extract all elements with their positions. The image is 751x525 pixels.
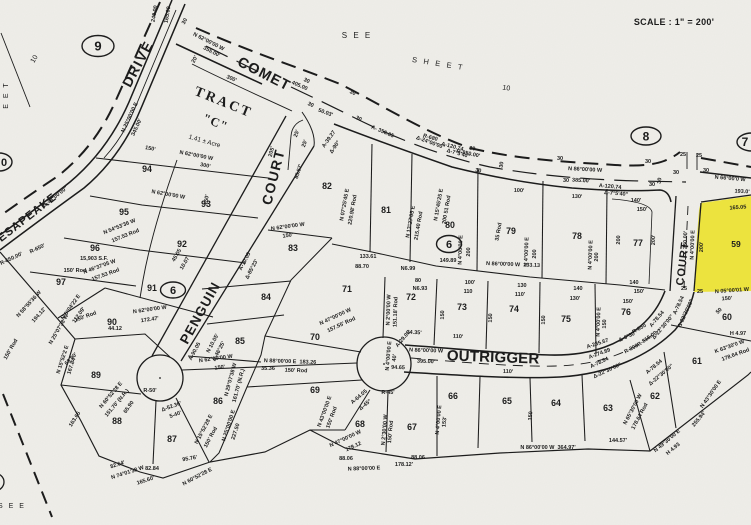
svg-text:68: 68 [355,419,365,429]
svg-text:153': 153' [442,416,449,428]
svg-text:92: 92 [177,239,187,249]
svg-text:83: 83 [288,243,298,253]
svg-text:150': 150' [637,207,648,213]
svg-text:25: 25 [696,153,702,159]
svg-text:70: 70 [310,332,320,342]
svg-text:76: 76 [621,307,631,317]
svg-text:91: 91 [147,283,157,293]
svg-text:59: 59 [731,239,741,249]
svg-text:44.12: 44.12 [108,326,122,332]
svg-text:94: 94 [142,164,152,174]
svg-text:N 88°00'00 E: N 88°00'00 E [348,465,381,472]
svg-text:N 4°00'00 E: N 4°00'00 E [689,230,696,260]
svg-text:S E E: S E E [342,31,372,40]
svg-text:78: 78 [572,231,582,241]
svg-text:81: 81 [381,205,391,215]
svg-text:30: 30 [499,161,506,168]
svg-text:10: 10 [502,84,511,92]
svg-text:133.61: 133.61 [360,254,377,260]
svg-text:200': 200' [651,234,657,245]
svg-text:140: 140 [629,280,638,286]
svg-text:30: 30 [649,182,655,188]
svg-text:151.18' Rod: 151.18' Rod [392,297,399,328]
svg-text:40': 40' [392,353,399,362]
svg-text:69: 69 [310,385,320,395]
svg-text:86: 86 [213,396,223,406]
svg-text:30: 30 [469,146,476,153]
svg-text:82: 82 [322,181,332,191]
svg-text:85: 85 [235,336,245,346]
svg-text:250.00': 250.00' [683,230,690,249]
svg-text:200: 200 [616,235,622,244]
svg-text:66: 66 [448,391,458,401]
svg-text:25: 25 [681,286,687,292]
svg-text:150' Rod: 150' Rod [64,268,87,274]
svg-text:73: 73 [457,302,467,312]
svg-text:140: 140 [573,286,582,292]
svg-text:178.12': 178.12' [395,462,414,468]
svg-text:30: 30 [645,159,651,165]
svg-text:110': 110' [515,292,526,298]
svg-text:N 4°00'00 E: N 4°00'00 E [457,235,464,265]
svg-text:30: 30 [703,168,709,174]
svg-text:35.36: 35.36 [261,366,275,372]
svg-text:95: 95 [119,207,129,217]
svg-text:77: 77 [633,238,643,248]
svg-text:R-45': R-45' [381,390,395,396]
svg-text:100': 100' [514,188,525,194]
svg-text:150': 150' [634,289,645,295]
svg-text:130': 130' [570,296,581,302]
svg-text:30: 30 [657,177,664,184]
svg-text:72: 72 [406,292,416,302]
svg-text:E E T: E E T [3,81,10,108]
svg-text:60: 60 [722,312,732,322]
svg-text:150: 150 [488,313,494,322]
svg-text:200: 200 [532,249,538,258]
svg-text:165.05: 165.05 [729,204,746,211]
svg-text:25: 25 [680,152,686,158]
svg-text:395.00': 395.00' [417,359,436,366]
svg-text:79: 79 [506,226,516,236]
svg-text:110: 110 [464,289,473,295]
svg-text:88.06: 88.06 [411,455,425,461]
svg-text:88.06: 88.06 [339,456,353,462]
svg-text:200: 200 [466,247,472,256]
svg-text:30: 30 [673,170,679,176]
svg-text:67: 67 [407,422,417,432]
svg-text:100': 100' [465,280,476,286]
svg-text:87: 87 [167,434,177,444]
svg-text:R-50': R-50' [143,388,157,394]
svg-text:25: 25 [697,289,703,295]
svg-text:150: 150 [541,315,547,324]
svg-text:150: 150 [602,319,608,328]
svg-text:15,903 S.F.: 15,903 S.F. [80,256,108,262]
svg-text:94.65: 94.65 [391,365,405,371]
svg-text:130: 130 [517,283,526,289]
svg-text:97: 97 [56,277,66,287]
svg-text:110': 110' [503,369,514,375]
svg-text:30: 30 [475,168,482,175]
svg-text:6: 6 [446,239,452,251]
svg-text:63: 63 [603,403,613,413]
svg-text:89: 89 [91,370,101,380]
svg-text:H 4.97: H 4.97 [730,331,746,337]
svg-text:144.57': 144.57' [609,438,628,444]
svg-text:N 86°00'00 W 364.97': N 86°00'00 W 364.97' [520,445,576,451]
svg-text:S E E: S E E [0,503,26,510]
svg-text:30: 30 [563,178,569,184]
svg-text:N6.93: N6.93 [413,286,428,292]
svg-text:110': 110' [453,334,464,341]
svg-text:OUTRIGGER: OUTRIGGER [447,347,540,367]
svg-text:7: 7 [742,135,749,149]
svg-text:150': 150' [623,299,634,305]
svg-text:149.89: 149.89 [440,258,457,264]
svg-text:96: 96 [90,243,100,253]
svg-text:84: 84 [261,292,271,302]
svg-text:61: 61 [692,356,702,366]
svg-text:80: 80 [415,278,421,284]
svg-text:200: 200 [594,252,600,261]
svg-text:62: 62 [650,391,660,401]
svg-text:150' Rod: 150' Rod [285,368,308,375]
svg-text:385.00': 385.00' [572,178,591,185]
svg-text:130': 130' [572,194,583,200]
svg-text:N 2°00'00 W: N 2°00'00 W [385,294,392,326]
svg-text:N 86°00'00 W: N 86°00'00 W [409,347,444,354]
svg-text:9: 9 [94,39,101,54]
svg-text:65: 65 [502,396,512,406]
svg-text:64: 64 [551,398,561,408]
svg-text:150': 150' [721,296,733,303]
svg-text:6: 6 [170,285,176,297]
svg-text:75: 75 [561,314,571,324]
svg-text:140': 140' [631,198,642,204]
svg-text:193.0': 193.0' [734,189,750,196]
svg-text:150: 150 [528,411,535,421]
svg-text:150: 150 [440,310,446,319]
svg-text:88.70: 88.70 [355,264,369,270]
svg-text:71: 71 [342,284,352,294]
svg-text:88: 88 [112,416,122,426]
svg-text:30: 30 [557,156,563,162]
svg-text:82.84: 82.84 [145,466,160,472]
svg-text:0: 0 [1,157,7,169]
svg-text:200': 200' [699,241,705,252]
svg-text:SCALE : 1" = 200': SCALE : 1" = 200' [634,17,714,27]
svg-text:8: 8 [643,129,650,143]
svg-text:N6.99: N6.99 [401,266,416,272]
svg-text:74: 74 [509,304,519,314]
